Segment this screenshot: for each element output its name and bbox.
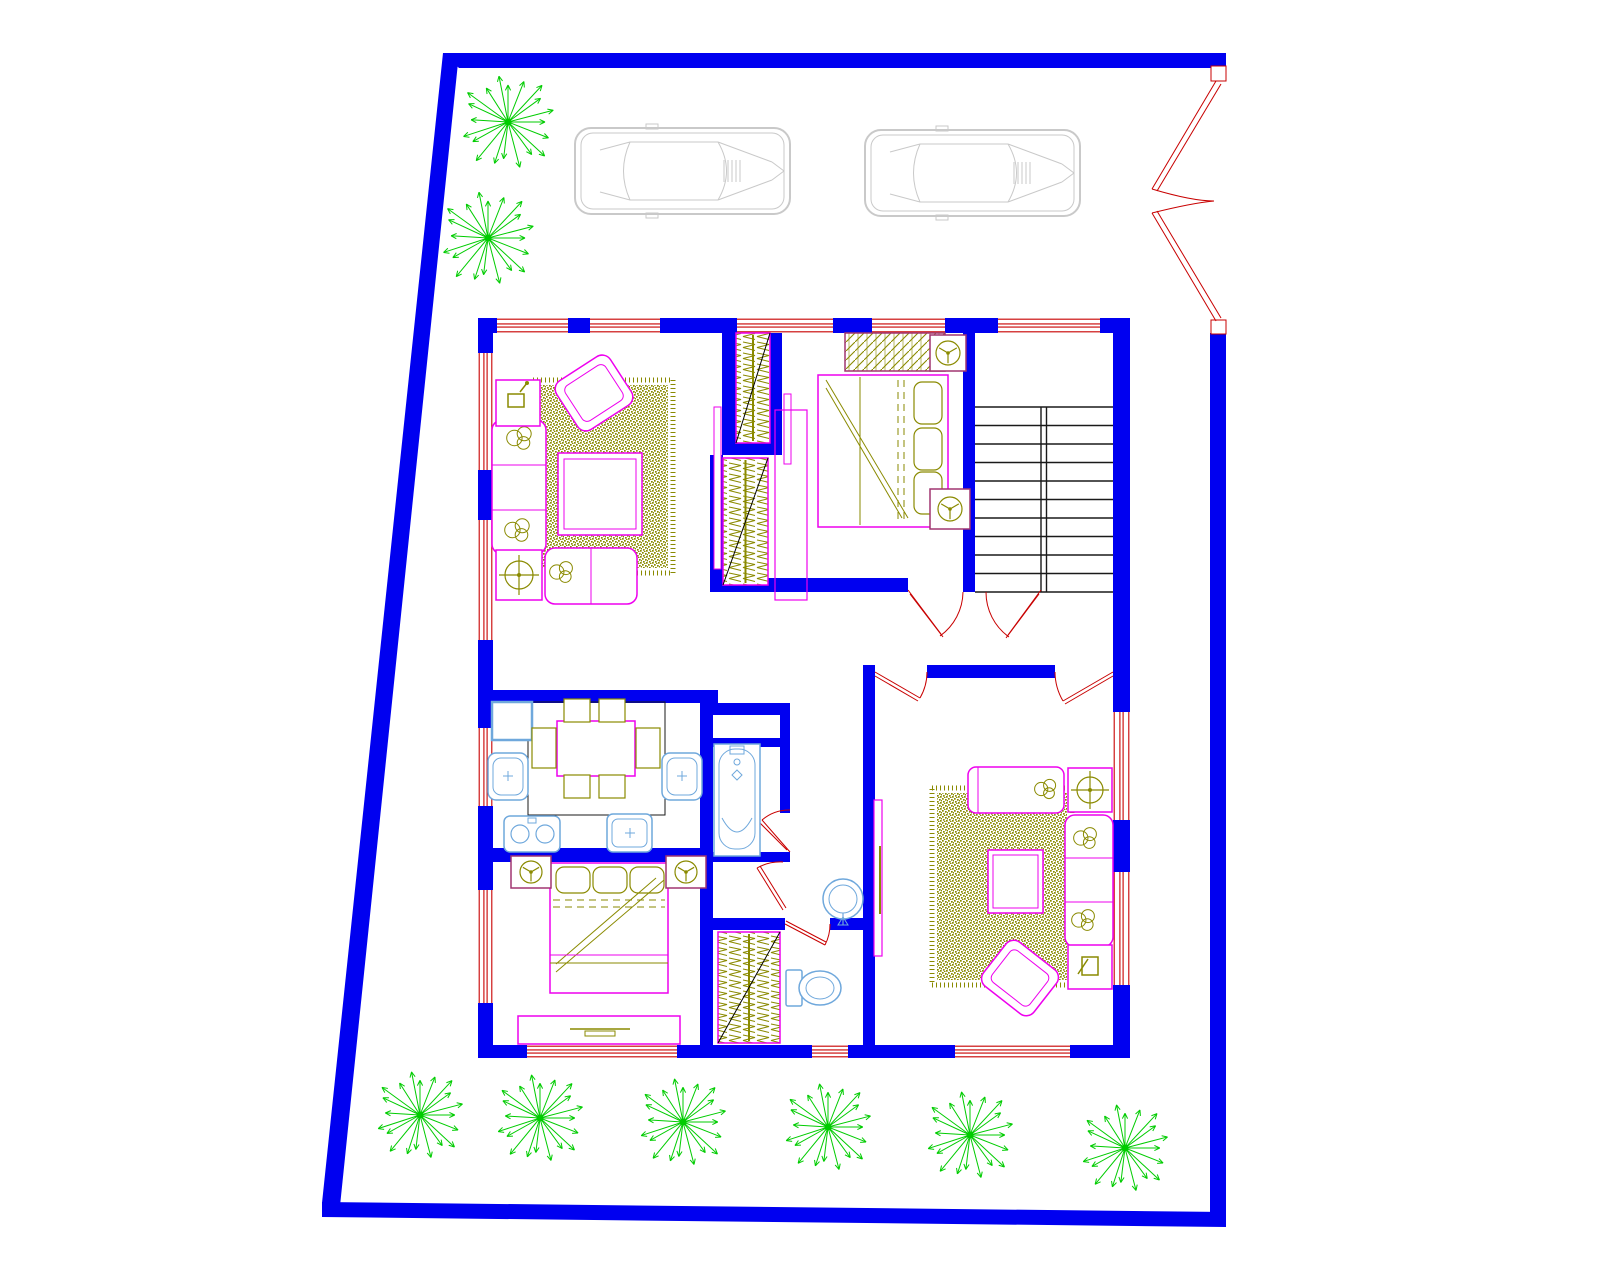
gate-leaf-bottom [1157, 211, 1221, 318]
layer-parked-cars [575, 124, 1080, 220]
closet-hatched [718, 932, 780, 1043]
tv-unit [874, 800, 882, 956]
double-bed [818, 375, 948, 527]
window [872, 318, 945, 333]
double-bed [550, 863, 668, 993]
shelf-strip [784, 394, 791, 464]
door-swing [875, 672, 927, 701]
stove [504, 816, 560, 852]
window [478, 520, 493, 640]
sofa [492, 420, 546, 554]
kitchen-sink [488, 753, 528, 800]
tree [378, 1072, 462, 1158]
dining-chair [599, 699, 625, 722]
gate-leaf-top [1157, 84, 1221, 191]
door-swing [908, 590, 963, 637]
wall-stairwell-left [963, 333, 975, 592]
boundary-bottom-wall [322, 1202, 1226, 1227]
fridge [492, 702, 532, 740]
floor-plan-page [0, 0, 1600, 1280]
loveseat [968, 767, 1064, 813]
window [527, 1045, 677, 1058]
tree [1083, 1105, 1167, 1191]
layer-bedroom-2 [511, 856, 706, 1044]
window [1113, 872, 1130, 985]
ceiling-fan-box [930, 335, 966, 371]
door-swing [757, 862, 786, 910]
sofa [1065, 815, 1113, 947]
dining-chair [564, 775, 590, 798]
window [497, 318, 568, 333]
dining-chair [636, 728, 660, 768]
layer-staircase [975, 407, 1113, 592]
boundary-right-wall [1210, 333, 1226, 1225]
side-table [1068, 945, 1112, 989]
closet-hatched [736, 333, 770, 443]
dining-chair [564, 699, 590, 722]
door-swing [760, 810, 790, 852]
gate-swing-arc [1152, 201, 1214, 213]
layer-family-room [874, 767, 1113, 1020]
layer-bathroom [714, 744, 760, 856]
side-table [496, 380, 540, 426]
gate-leaf-top [1152, 81, 1216, 189]
toilet [786, 970, 841, 1006]
door-swing [986, 590, 1041, 638]
coffee-table [988, 850, 1043, 913]
tree [464, 76, 554, 167]
wall-bath-right [780, 703, 790, 813]
layer-living-room [492, 351, 673, 604]
wall-wc-top-left [713, 918, 785, 930]
kitchen-sink [607, 814, 652, 852]
car [865, 126, 1080, 220]
bathtub [714, 744, 760, 856]
ceiling-fan-box [930, 489, 970, 529]
side-table [1068, 768, 1112, 812]
wall-closet1-bottom [722, 443, 782, 455]
nightstand [511, 856, 551, 888]
floor-plan-canvas [0, 0, 1600, 1280]
layer-kitchen-dining [488, 699, 702, 852]
nightstand [666, 856, 706, 888]
tree [641, 1079, 725, 1165]
wall-bath-top [713, 703, 790, 715]
coffee-table [558, 453, 642, 535]
kitchen-sink [662, 753, 702, 800]
shelf-strip [714, 407, 721, 569]
wall-closet1-left [722, 333, 736, 443]
car [575, 124, 790, 218]
layer-wc [786, 879, 863, 1006]
dining-chair [599, 775, 625, 798]
dining-chair [532, 728, 556, 768]
tree [498, 1075, 582, 1161]
gate-post-bottom [1211, 320, 1226, 334]
window [1113, 712, 1130, 820]
dresser [518, 1016, 680, 1044]
dining-table [557, 721, 635, 776]
gate-post-top [1211, 66, 1226, 81]
boundary-top-wall [443, 53, 1226, 68]
layer-entrance-gate [1152, 66, 1226, 334]
gate-swing-arc [1152, 189, 1214, 201]
tree [444, 192, 534, 283]
boundary-left-wall [322, 53, 459, 1206]
tree [786, 1084, 870, 1170]
wall-wc-top-right [830, 918, 863, 930]
wall-family-top [927, 665, 1055, 678]
wall-closet1-right [770, 333, 782, 455]
window [812, 1045, 848, 1058]
tree [928, 1092, 1012, 1178]
gate-leaf-bottom [1152, 213, 1216, 321]
door-swing [785, 921, 830, 945]
staircase [975, 407, 1113, 592]
closet-hatched [723, 458, 768, 585]
window [737, 318, 833, 333]
window [998, 318, 1100, 333]
loveseat [545, 548, 637, 604]
door-swing [1055, 672, 1113, 704]
side-table [496, 550, 542, 600]
window [478, 890, 493, 1003]
window [478, 353, 493, 470]
window [590, 318, 660, 333]
wall-family-left [863, 665, 875, 1045]
window [955, 1045, 1070, 1058]
